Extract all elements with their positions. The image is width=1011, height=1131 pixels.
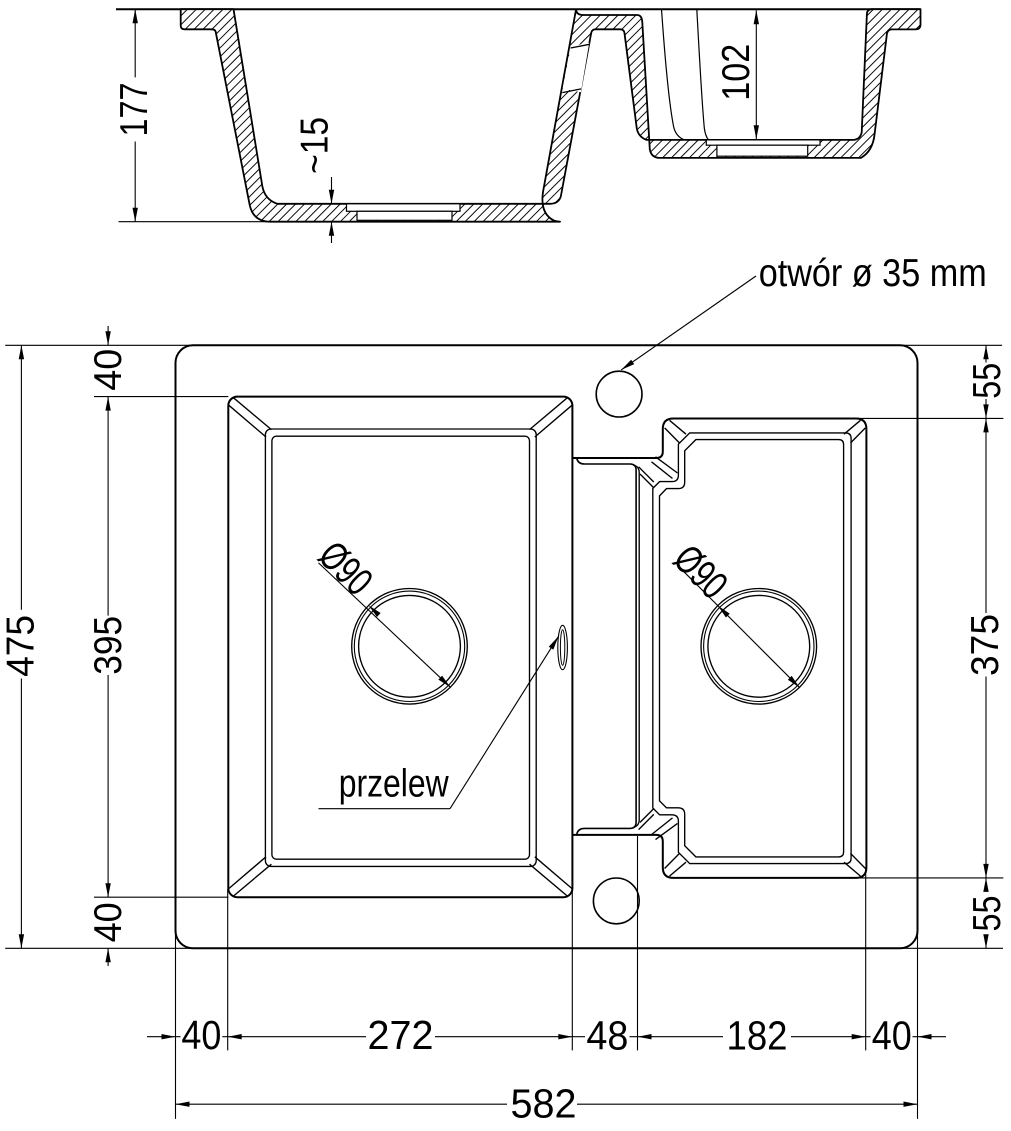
- svg-text:48: 48: [586, 1013, 628, 1059]
- svg-text:395: 395: [87, 616, 130, 675]
- svg-text:~15: ~15: [293, 117, 336, 174]
- svg-text:182: 182: [727, 1013, 788, 1059]
- svg-text:582: 582: [511, 1081, 577, 1127]
- svg-text:otwór ø 35 mm: otwór ø 35 mm: [759, 252, 987, 295]
- svg-text:55: 55: [966, 896, 1009, 932]
- svg-text:40: 40: [872, 1013, 912, 1059]
- svg-text:475: 475: [0, 615, 42, 677]
- svg-text:40: 40: [87, 902, 130, 942]
- svg-text:40: 40: [87, 349, 130, 391]
- svg-text:przelew: przelew: [339, 763, 450, 806]
- svg-text:375: 375: [964, 614, 1007, 676]
- svg-text:272: 272: [368, 1012, 434, 1058]
- svg-text:55: 55: [966, 363, 1009, 399]
- svg-text:177: 177: [113, 83, 156, 137]
- svg-text:40: 40: [181, 1012, 221, 1058]
- svg-text:102: 102: [715, 44, 758, 101]
